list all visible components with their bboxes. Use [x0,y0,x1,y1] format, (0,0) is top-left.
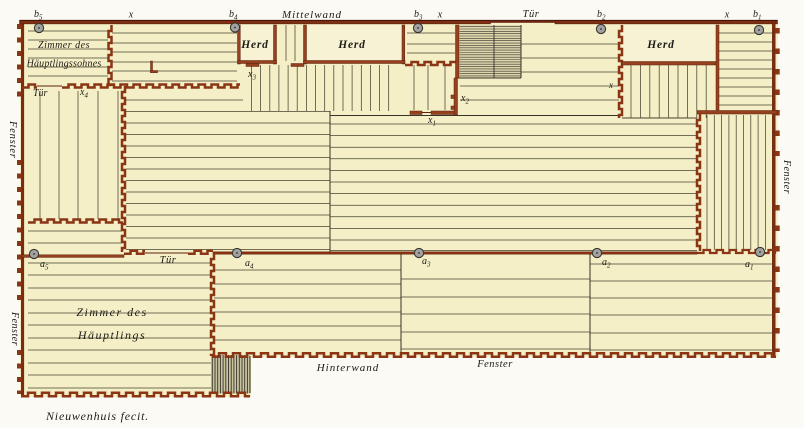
svg-text:Fenster: Fenster [7,120,18,159]
svg-text:x: x [128,10,134,21]
svg-text:Zimmer des: Zimmer des [76,305,147,319]
svg-text:x: x [608,80,613,90]
svg-text:Nieuwenhuis fecit.: Nieuwenhuis fecit. [45,409,149,423]
svg-text:Fenster: Fenster [476,359,513,370]
svg-text:x: x [724,10,730,21]
svg-text:Häuptlingssohnes: Häuptlingssohnes [26,59,102,70]
svg-text:Fenster: Fenster [781,159,792,194]
svg-text:Fenster: Fenster [9,311,20,346]
svg-text:Zimmer des: Zimmer des [38,40,90,51]
svg-text:Häuptlings: Häuptlings [77,328,146,342]
svg-text:Herd: Herd [646,39,674,51]
svg-text:Tür: Tür [523,9,540,20]
svg-text:Mittelwand: Mittelwand [281,9,342,21]
svg-text:Tür: Tür [33,88,48,99]
svg-text:Hinterwand: Hinterwand [316,362,380,374]
svg-text:Herd: Herd [337,39,365,51]
svg-text:Tür: Tür [160,255,177,266]
svg-text:x: x [437,10,443,21]
svg-text:Herd: Herd [240,39,268,51]
